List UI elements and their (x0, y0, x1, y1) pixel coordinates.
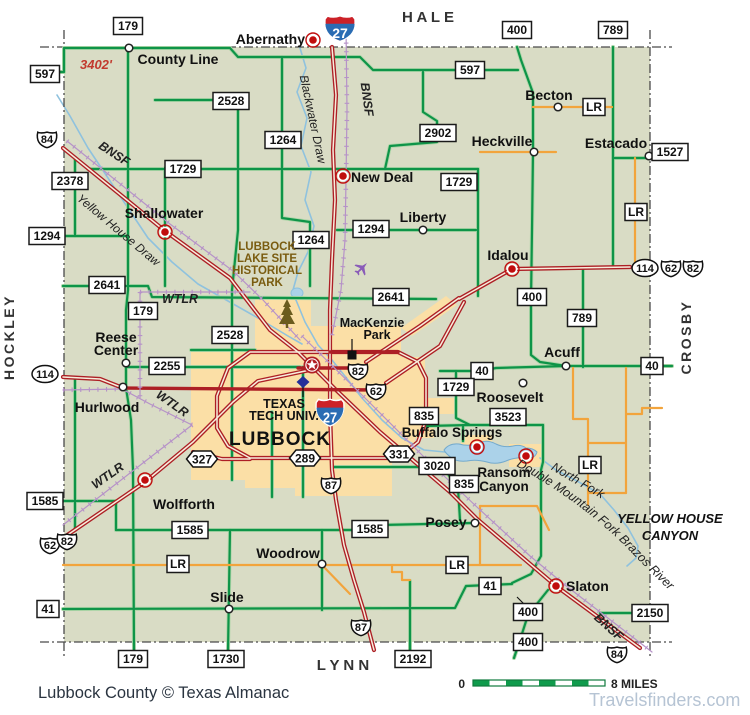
svg-text:LR: LR (582, 458, 598, 472)
svg-text:2528: 2528 (217, 328, 244, 342)
svg-text:8 MILES: 8 MILES (611, 677, 658, 691)
svg-text:Buffalo Springs: Buffalo Springs (402, 425, 503, 440)
svg-text:0: 0 (458, 677, 465, 691)
svg-text:Liberty: Liberty (400, 209, 447, 225)
svg-text:179: 179 (118, 19, 138, 33)
svg-text:400: 400 (522, 290, 542, 304)
svg-text:1294: 1294 (358, 222, 385, 236)
svg-text:Woodrow: Woodrow (256, 545, 320, 561)
svg-text:84: 84 (41, 134, 54, 146)
svg-text:Heckville: Heckville (472, 133, 533, 149)
svg-text:County Line: County Line (138, 51, 219, 67)
svg-text:62: 62 (370, 386, 382, 398)
svg-text:Roosevelt: Roosevelt (477, 389, 544, 405)
svg-text:WTLR: WTLR (162, 292, 198, 306)
svg-text:87: 87 (355, 622, 367, 634)
svg-text:114: 114 (636, 263, 655, 275)
svg-text:1729: 1729 (443, 380, 470, 394)
svg-text:835: 835 (454, 477, 474, 491)
svg-text:82: 82 (352, 366, 364, 378)
svg-text:40: 40 (645, 359, 659, 373)
svg-text:Estacado: Estacado (585, 135, 647, 151)
svg-text:2528: 2528 (218, 94, 245, 108)
svg-text:H A L E: H A L E (402, 9, 454, 26)
svg-text:41: 41 (41, 602, 55, 616)
svg-text:Hurlwood: Hurlwood (75, 399, 140, 415)
svg-text:1264: 1264 (298, 233, 325, 247)
svg-text:1585: 1585 (177, 523, 204, 537)
svg-text:Slaton: Slaton (566, 578, 609, 594)
svg-text:41: 41 (483, 579, 497, 593)
svg-text:Canyon: Canyon (479, 479, 529, 494)
svg-text:1585: 1585 (357, 522, 384, 536)
svg-text:CANYON: CANYON (642, 528, 699, 543)
svg-text:87: 87 (325, 480, 337, 492)
svg-text:L Y N N: L Y N N (317, 657, 370, 674)
svg-text:1730: 1730 (213, 652, 240, 666)
svg-text:LR: LR (628, 205, 644, 219)
svg-text:1294: 1294 (34, 229, 61, 243)
svg-text:Wolfforth: Wolfforth (153, 496, 215, 512)
svg-text:Park: Park (363, 328, 390, 342)
svg-text:27: 27 (332, 25, 348, 41)
svg-text:Acuff: Acuff (544, 344, 580, 360)
svg-text:CROSBY: CROSBY (678, 300, 694, 375)
svg-text:New Deal: New Deal (351, 169, 413, 185)
svg-text:3402': 3402' (80, 57, 113, 72)
svg-text:1264: 1264 (270, 133, 297, 147)
svg-text:Shallowater: Shallowater (125, 205, 204, 221)
svg-text:2902: 2902 (425, 126, 452, 140)
svg-text:179: 179 (123, 652, 143, 666)
svg-text:LR: LR (170, 557, 186, 571)
svg-text:1729: 1729 (446, 175, 473, 189)
svg-text:2641: 2641 (94, 278, 121, 292)
svg-text:27: 27 (323, 408, 338, 425)
svg-text:400: 400 (518, 605, 538, 619)
svg-text:789: 789 (572, 311, 592, 325)
svg-text:179: 179 (133, 304, 153, 318)
svg-text:YELLOW HOUSE: YELLOW HOUSE (617, 511, 723, 526)
svg-text:PARK: PARK (251, 277, 283, 289)
svg-text:62: 62 (44, 540, 56, 552)
svg-text:82: 82 (687, 263, 699, 275)
svg-text:62: 62 (665, 263, 677, 275)
svg-text:1729: 1729 (170, 162, 197, 176)
svg-text:LUBBOCK: LUBBOCK (238, 241, 296, 253)
svg-text:400: 400 (507, 23, 527, 37)
svg-text:Abernathy: Abernathy (236, 31, 305, 47)
svg-text:3523: 3523 (495, 410, 522, 424)
svg-text:400: 400 (518, 635, 538, 649)
svg-text:1527: 1527 (657, 145, 684, 159)
svg-text:2641: 2641 (378, 290, 405, 304)
svg-text:Idalou: Idalou (487, 247, 528, 263)
svg-text:835: 835 (414, 409, 434, 423)
svg-text:82: 82 (61, 536, 73, 548)
svg-text:Lubbock County © Texas Almanac: Lubbock County © Texas Almanac (38, 684, 289, 702)
svg-text:289: 289 (295, 452, 315, 466)
svg-text:2192: 2192 (400, 652, 427, 666)
svg-text:2378: 2378 (57, 174, 84, 188)
svg-text:Slide: Slide (210, 589, 244, 605)
svg-text:331: 331 (389, 448, 409, 462)
svg-text:84: 84 (611, 649, 624, 661)
svg-text:LUBBOCK: LUBBOCK (229, 429, 331, 450)
svg-text:HOCKLEY: HOCKLEY (1, 294, 17, 380)
svg-text:LAKE SITE: LAKE SITE (237, 253, 297, 265)
svg-text:2255: 2255 (154, 359, 181, 373)
svg-text:Center: Center (94, 342, 139, 358)
svg-text:Posey: Posey (425, 514, 466, 530)
svg-text:789: 789 (603, 23, 623, 37)
svg-text:1585: 1585 (32, 494, 59, 508)
svg-text:HISTORICAL: HISTORICAL (232, 265, 302, 277)
svg-text:597: 597 (460, 63, 480, 77)
svg-text:327: 327 (192, 453, 212, 467)
svg-text:TECH UNIV.: TECH UNIV. (249, 409, 319, 423)
svg-text:114: 114 (36, 369, 55, 381)
svg-text:2150: 2150 (637, 606, 664, 620)
svg-text:3020: 3020 (424, 459, 451, 473)
svg-text:Becton: Becton (525, 87, 572, 103)
svg-text:LR: LR (449, 558, 465, 572)
svg-text:597: 597 (35, 67, 55, 81)
svg-text:LR: LR (586, 100, 602, 114)
svg-text:Travelsfinders.com: Travelsfinders.com (589, 690, 740, 710)
svg-text:40: 40 (475, 364, 489, 378)
